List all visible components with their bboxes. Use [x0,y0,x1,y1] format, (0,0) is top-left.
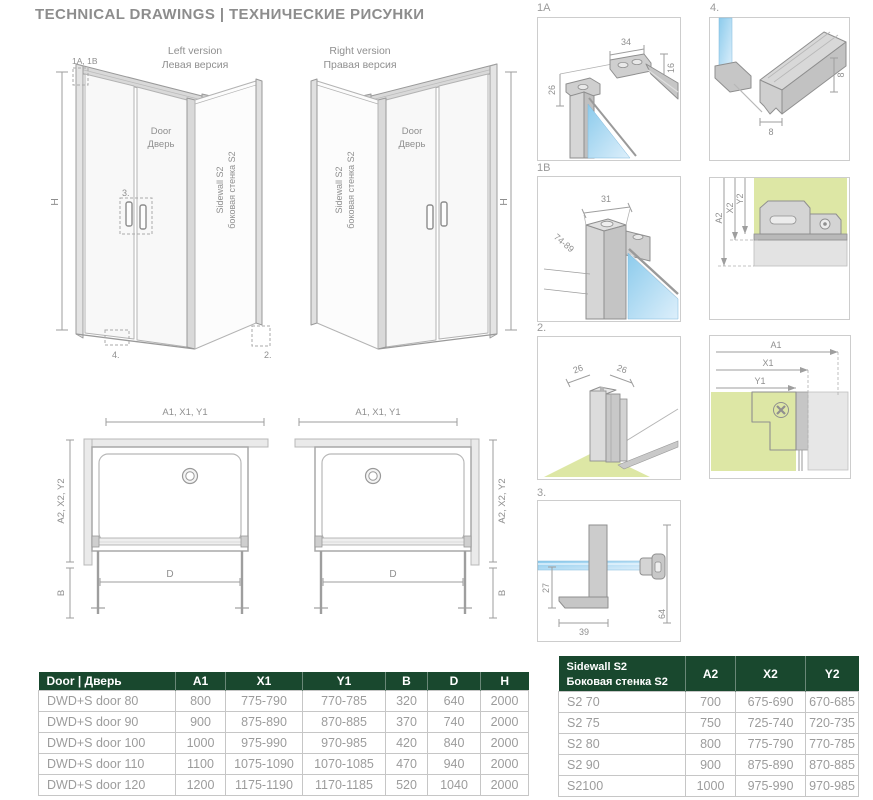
table-cell: 1100 [176,754,226,775]
detail-4-label: 4. [710,2,719,14]
table-cell: S2 80 [559,734,686,755]
sidewall-header-ru: Боковая стенка S2 [567,675,686,689]
detail-3-box: 27 39 64 [537,500,681,642]
table-cell: S2 90 [559,755,686,776]
table-cell: 420 [386,733,428,754]
table-cell: 2000 [481,712,529,733]
door-label-en: Door [151,126,172,137]
d-dim-label: D [389,569,396,580]
dim-34: 34 [621,37,631,47]
dim-26-left: 26 [572,363,585,376]
sidewall-header-en: Sidewall S2 [567,660,686,674]
table-header-cell: X1 [226,672,303,691]
catalog-page: TECHNICAL DRAWINGS | ТЕХНИЧЕСКИЕ РИСУНКИ [0,0,873,800]
table-cell: 875-890 [736,755,806,776]
table-header-cell: D [428,672,481,691]
sidewall-size-table: Sidewall S2 Боковая стенка S2 A2 X2 Y2 S… [558,656,859,797]
detail-2-label: 2. [537,322,546,334]
width-dim-label: A1, X1, Y1 [162,407,207,418]
table-cell: 775-790 [226,691,303,712]
right-version-title-en: Right version [329,45,390,57]
callout-1a-1b: 1A, 1B [72,56,98,66]
detail-1b-box: 31 74-89 [537,176,681,322]
dim-8-height: 8 [836,72,846,77]
table-cell: 900 [686,755,736,776]
table-cell: 320 [386,691,428,712]
table-cell: 1075-1090 [226,754,303,775]
dim-31: 31 [601,194,611,204]
dim-64: 64 [657,609,667,619]
table-cell: 840 [428,733,481,754]
table-row: DWD+S door 80 800 775-790 770-785 320 64… [39,691,529,712]
table-cell: 900 [176,712,226,733]
table-cell: 2000 [481,733,529,754]
table-cell: 470 [386,754,428,775]
table-cell: DWD+S door 90 [39,712,176,733]
table-cell: 1175-1190 [226,775,303,796]
table-cell: 1200 [176,775,226,796]
table-cell: 720-735 [806,713,859,734]
sidewall-label-en: Sidewall S2 [215,166,225,213]
table-header-cell: Sidewall S2 Боковая стенка S2 [559,656,686,692]
table-row: DWD+S door 100 1000 975-990 970-985 420 … [39,733,529,754]
callout-2: 2. [264,350,272,360]
detail-a2-box: A2 X2 Y2 [709,177,850,320]
table-cell: 740 [428,712,481,733]
table-cell: DWD+S door 80 [39,691,176,712]
table-header-row: Sidewall S2 Боковая стенка S2 A2 X2 Y2 [559,656,859,692]
dim-39: 39 [579,627,589,637]
table-cell: 770-785 [303,691,386,712]
height-dim-label: H [49,198,61,206]
table-cell: DWD+S door 120 [39,775,176,796]
dim-26-right: 26 [616,363,629,376]
top-view-right: A1, X1, Y1 A2, X2, Y2 B D [283,392,523,640]
dim-16: 16 [666,63,676,73]
left-version-title-ru: Левая версия [162,59,229,71]
table-header-cell: X2 [736,656,806,692]
table-cell: DWD+S door 100 [39,733,176,754]
table-row: DWD+S door 110 1100 1075-1090 1070-1085 … [39,754,529,775]
door-size-table: Door | Дверь A1 X1 Y1 B D H DWD+S door 8… [38,672,529,796]
d-dim-label: D [166,569,173,580]
table-cell: 670-685 [806,692,859,713]
dim-8-width: 8 [768,127,773,137]
table-cell: 970-985 [806,776,859,797]
table-cell: 675-690 [736,692,806,713]
table-row: S2 70 700 675-690 670-685 [559,692,859,713]
detail-2-box: 26 26 [537,336,681,480]
dim-x2: X2 [725,202,735,213]
table-cell: 2000 [481,775,529,796]
table-cell: 370 [386,712,428,733]
dim-a1: A1 [770,340,781,350]
sidewall-label-ru: боковая стенка S2 [346,151,356,228]
right-version-title-ru: Правая версия [323,59,396,71]
table-cell: 975-990 [736,776,806,797]
table-header-cell: B [386,672,428,691]
table-cell: 725-740 [736,713,806,734]
table-header-cell: A2 [686,656,736,692]
table-header-row: Door | Дверь A1 X1 Y1 B D H [39,672,529,691]
table-cell: 2000 [481,754,529,775]
height-dim-label: H [498,198,510,206]
dim-74-89: 74-89 [552,232,576,254]
table-cell: 1170-1185 [303,775,386,796]
table-cell: 520 [386,775,428,796]
table-row: DWD+S door 120 1200 1175-1190 1170-1185 … [39,775,529,796]
detail-marker-2 [252,326,270,346]
callout-4: 4. [112,350,120,360]
table-cell: 940 [428,754,481,775]
table-cell: 870-885 [303,712,386,733]
dim-a2: A2 [714,212,724,223]
table-cell: 1000 [176,733,226,754]
table-cell: 875-890 [226,712,303,733]
table-cell: 1040 [428,775,481,796]
b-dim-label: B [497,590,508,596]
table-cell: 970-985 [303,733,386,754]
dim-y2: Y2 [735,193,745,204]
detail-3-label: 3. [537,487,546,499]
b-dim-label: B [56,590,67,596]
table-cell: S2100 [559,776,686,797]
table-cell: 640 [428,691,481,712]
table-cell: S2 75 [559,713,686,734]
table-cell: 800 [176,691,226,712]
left-version-drawing: Left version Левая версия 1A, 1B Door Дв… [50,40,285,385]
table-header-cell: Door | Дверь [39,672,176,691]
top-view-left: A1, X1, Y1 A2, X2, Y2 B D [40,392,280,640]
dim-y1: Y1 [754,376,765,386]
callout-3: 3. [122,188,130,198]
table-header-cell: A1 [176,672,226,691]
detail-4-box: 8 8 [709,17,850,161]
table-row: S2 90 900 875-890 870-885 [559,755,859,776]
sidewall-label-ru: боковая стенка S2 [227,151,237,228]
table-cell: 750 [686,713,736,734]
table-cell: 1000 [686,776,736,797]
detail-a1-box: A1 X1 Y1 [709,335,851,479]
table-row: S2 80 800 775-790 770-785 [559,734,859,755]
table-row: S2100 1000 975-990 970-985 [559,776,859,797]
detail-1a-box: 34 16 26 [537,17,681,161]
depth-dim-label: A2, X2, Y2 [497,478,508,523]
sidewall-label-en: Sidewall S2 [334,166,344,213]
table-cell: 975-990 [226,733,303,754]
door-label-ru: Дверь [148,139,175,150]
table-cell: 775-790 [736,734,806,755]
detail-1a-label: 1A [537,2,550,14]
table-cell: 770-785 [806,734,859,755]
table-row: DWD+S door 90 900 875-890 870-885 370 74… [39,712,529,733]
detail-1b-label: 1B [537,162,550,174]
table-row: S2 75 750 725-740 720-735 [559,713,859,734]
table-header-cell: Y2 [806,656,859,692]
depth-dim-label: A2, X2, Y2 [56,478,67,523]
dim-27: 27 [541,583,551,593]
door-label-en: Door [402,126,423,137]
page-title: TECHNICAL DRAWINGS | ТЕХНИЧЕСКИЕ РИСУНКИ [35,6,424,23]
table-cell: S2 70 [559,692,686,713]
dim-26: 26 [547,85,557,95]
table-header-cell: H [481,672,529,691]
table-cell: 2000 [481,691,529,712]
table-cell: 1070-1085 [303,754,386,775]
table-cell: 870-885 [806,755,859,776]
right-version-drawing: Right version Правая версия Door Дверь S… [288,40,523,385]
table-cell: 700 [686,692,736,713]
door-label-ru: Дверь [399,139,426,150]
width-dim-label: A1, X1, Y1 [355,407,400,418]
table-cell: 800 [686,734,736,755]
table-cell: DWD+S door 110 [39,754,176,775]
table-header-cell: Y1 [303,672,386,691]
dim-x1: X1 [762,358,773,368]
left-version-title-en: Left version [168,45,222,57]
